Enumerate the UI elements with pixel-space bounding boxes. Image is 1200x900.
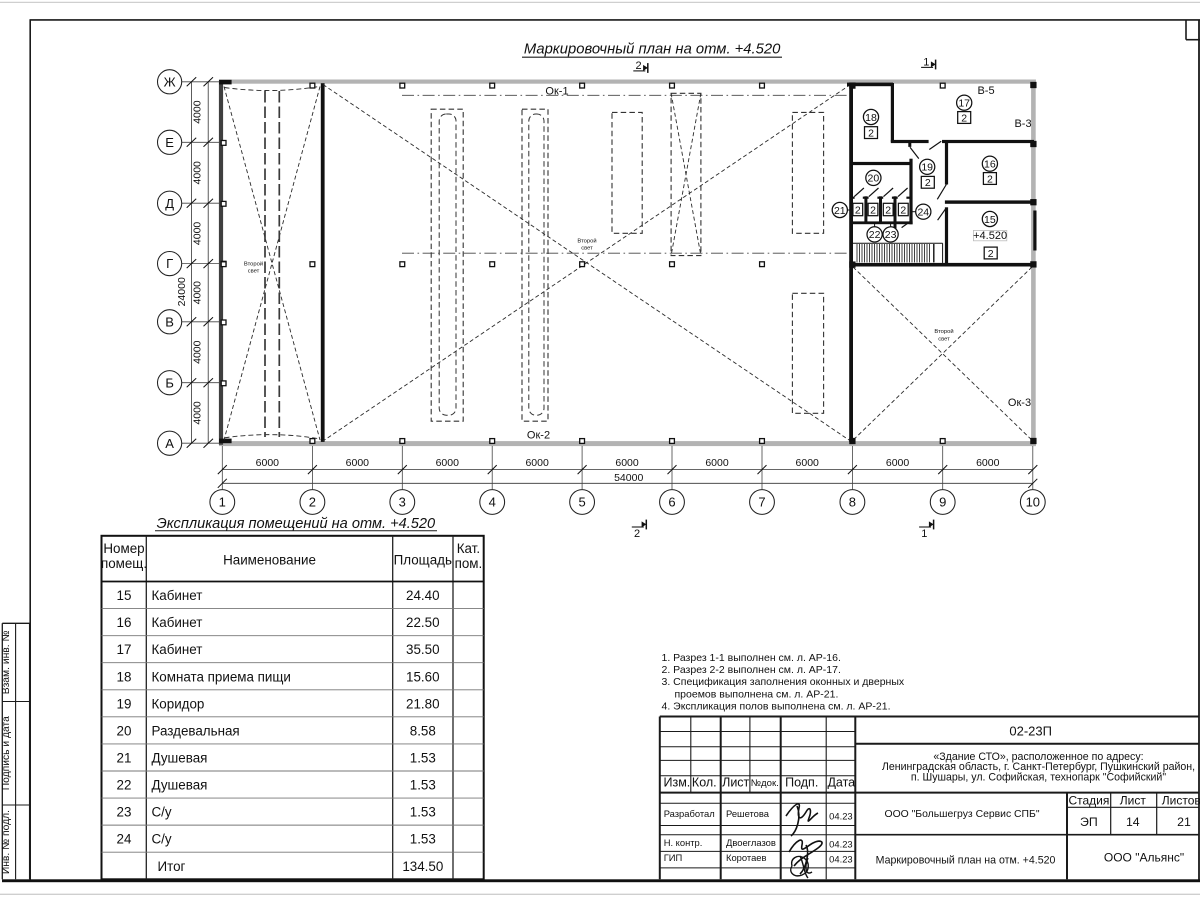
svg-text:Е: Е xyxy=(165,135,174,150)
svg-text:7: 7 xyxy=(758,495,765,510)
svg-text:134.50: 134.50 xyxy=(402,859,443,874)
svg-text:Душевая: Душевая xyxy=(152,778,208,793)
svg-text:24: 24 xyxy=(917,207,929,219)
svg-text:С/у: С/у xyxy=(152,805,172,820)
svg-text:04.23: 04.23 xyxy=(829,853,852,864)
svg-text:54000: 54000 xyxy=(614,472,643,484)
svg-text:1.53: 1.53 xyxy=(410,805,436,820)
svg-text:п. Шушары, ул. Софийская, техн: п. Шушары, ул. Софийская, технопарк "Соф… xyxy=(911,771,1166,783)
svg-text:Раздевальная: Раздевальная xyxy=(152,723,240,738)
svg-text:Разработал: Разработал xyxy=(664,808,715,819)
svg-text:Кабинет: Кабинет xyxy=(152,588,203,603)
svg-text:2: 2 xyxy=(885,204,891,216)
svg-text:9: 9 xyxy=(939,495,946,510)
svg-text:6000: 6000 xyxy=(886,457,910,469)
svg-text:+4.520: +4.520 xyxy=(973,230,1007,242)
svg-text:5: 5 xyxy=(578,495,585,510)
svg-text:Ок-2: Ок-2 xyxy=(527,430,550,442)
svg-text:04.23: 04.23 xyxy=(829,839,852,850)
svg-text:1.53: 1.53 xyxy=(410,778,436,793)
svg-text:2: 2 xyxy=(855,204,861,216)
svg-text:свет: свет xyxy=(938,336,950,342)
svg-text:Душевая: Душевая xyxy=(152,751,208,766)
svg-text:пом.: пом. xyxy=(455,556,483,571)
svg-text:1.53: 1.53 xyxy=(410,751,436,766)
svg-text:Наименование: Наименование xyxy=(223,553,316,568)
svg-text:4000: 4000 xyxy=(192,281,204,305)
svg-text:24000: 24000 xyxy=(176,277,188,306)
svg-text:19: 19 xyxy=(117,696,132,711)
svg-text:Ок-1: Ок-1 xyxy=(545,85,568,97)
svg-text:№док.: №док. xyxy=(751,778,779,789)
svg-text:4000: 4000 xyxy=(192,340,204,364)
svg-text:Дата: Дата xyxy=(827,776,855,790)
svg-text:1.53: 1.53 xyxy=(410,832,436,847)
svg-text:Кол.: Кол. xyxy=(692,776,717,790)
svg-text:6000: 6000 xyxy=(976,457,1000,469)
svg-text:4: 4 xyxy=(489,495,496,510)
svg-text:6000: 6000 xyxy=(436,457,460,469)
svg-text:18: 18 xyxy=(117,669,132,684)
svg-text:Второй: Второй xyxy=(244,261,263,268)
svg-text:21: 21 xyxy=(834,205,846,217)
svg-text:Маркировочный план на отм. +4.: Маркировочный план на отм. +4.520 xyxy=(876,854,1056,866)
svg-text:2: 2 xyxy=(900,204,906,216)
svg-text:помещ.: помещ. xyxy=(101,556,147,571)
svg-text:4000: 4000 xyxy=(192,222,204,246)
svg-text:Г: Г xyxy=(166,256,173,271)
svg-text:1: 1 xyxy=(921,528,927,540)
svg-text:В-5: В-5 xyxy=(977,85,994,97)
svg-text:15: 15 xyxy=(984,214,996,226)
svg-text:23: 23 xyxy=(885,229,897,241)
svg-text:Площадь: Площадь xyxy=(394,553,452,568)
svg-text:В: В xyxy=(165,314,174,329)
svg-text:проемов выполнена см. л. АР-21: проемов выполнена см. л. АР-21. xyxy=(675,688,839,700)
svg-text:18: 18 xyxy=(865,112,877,124)
svg-text:2: 2 xyxy=(988,248,994,260)
svg-text:4000: 4000 xyxy=(192,161,204,185)
svg-text:17: 17 xyxy=(117,642,132,657)
svg-text:21: 21 xyxy=(117,751,132,766)
svg-text:Подпись и дата: Подпись и дата xyxy=(1,716,12,790)
svg-text:В-3: В-3 xyxy=(1014,118,1031,130)
svg-text:23: 23 xyxy=(117,805,132,820)
svg-text:Инв. № подл.: Инв. № подл. xyxy=(1,810,12,874)
svg-text:1: 1 xyxy=(219,495,226,510)
svg-text:Итог: Итог xyxy=(158,859,186,874)
svg-text:Коротаев: Коротаев xyxy=(726,852,767,863)
svg-text:35.50: 35.50 xyxy=(406,642,440,657)
svg-text:2: 2 xyxy=(870,204,876,216)
svg-text:22: 22 xyxy=(117,778,132,793)
svg-text:Второй: Второй xyxy=(934,328,953,335)
svg-text:2: 2 xyxy=(925,177,931,189)
svg-text:19: 19 xyxy=(921,162,933,174)
svg-text:17: 17 xyxy=(958,98,970,110)
svg-text:21.80: 21.80 xyxy=(406,696,440,711)
svg-text:2: 2 xyxy=(635,60,641,72)
svg-text:свет: свет xyxy=(581,245,593,251)
svg-text:Ж: Ж xyxy=(164,74,176,89)
svg-text:22.50: 22.50 xyxy=(406,615,440,630)
svg-text:2: 2 xyxy=(309,495,316,510)
svg-text:3. Спецификация заполнения око: 3. Спецификация заполнения оконных и две… xyxy=(662,676,905,688)
svg-text:2. Разрез 2-2 выполнен см. л.: 2. Разрез 2-2 выполнен см. л. АР-17. xyxy=(662,664,841,676)
svg-text:24: 24 xyxy=(117,832,132,847)
svg-text:Кабинет: Кабинет xyxy=(152,615,203,630)
svg-text:Лист: Лист xyxy=(1120,793,1147,807)
svg-text:Решетова: Решетова xyxy=(726,808,770,819)
svg-text:16: 16 xyxy=(984,159,996,171)
svg-text:04.23: 04.23 xyxy=(829,810,852,821)
svg-text:21: 21 xyxy=(1177,815,1191,829)
svg-text:6000: 6000 xyxy=(525,457,549,469)
svg-text:Подп.: Подп. xyxy=(785,776,818,790)
svg-text:Номер: Номер xyxy=(103,541,144,556)
svg-text:22: 22 xyxy=(869,229,881,241)
svg-text:Комната приема пищи: Комната приема пищи xyxy=(152,669,291,684)
svg-text:8: 8 xyxy=(849,495,856,510)
svg-text:2: 2 xyxy=(634,528,640,540)
svg-text:Маркировочный план на отм. +4.: Маркировочный план на отм. +4.520 xyxy=(524,42,781,58)
svg-text:ЭП: ЭП xyxy=(1080,815,1098,829)
svg-text:24.40: 24.40 xyxy=(406,588,440,603)
svg-text:16: 16 xyxy=(117,615,132,630)
svg-text:1. Разрез 1-1 выполнен см. л.: 1. Разрез 1-1 выполнен см. л. АР-16. xyxy=(662,652,841,664)
svg-text:2: 2 xyxy=(987,173,993,185)
svg-text:Экспликация помещений на отм.: Экспликация помещений на отм. +4.520 xyxy=(157,516,435,532)
svg-text:2: 2 xyxy=(961,112,967,124)
svg-text:Кабинет: Кабинет xyxy=(152,642,203,657)
svg-text:Двоеглазов: Двоеглазов xyxy=(726,837,776,848)
svg-text:ГИП: ГИП xyxy=(664,852,683,863)
svg-text:А: А xyxy=(165,436,174,451)
svg-text:6000: 6000 xyxy=(346,457,370,469)
svg-text:4000: 4000 xyxy=(192,401,204,425)
svg-text:Коридор: Коридор xyxy=(152,696,205,711)
svg-text:8.58: 8.58 xyxy=(410,723,436,738)
svg-text:02-23П: 02-23П xyxy=(1009,724,1052,739)
svg-text:10: 10 xyxy=(1026,495,1040,510)
svg-text:Второй: Второй xyxy=(577,237,596,244)
svg-text:20: 20 xyxy=(868,173,880,185)
svg-text:15: 15 xyxy=(117,588,132,603)
svg-text:ООО "Альянс": ООО "Альянс" xyxy=(1104,851,1184,865)
svg-text:Н. контр.: Н. контр. xyxy=(664,837,703,848)
svg-text:4. Экспликация полов выполнена: 4. Экспликация полов выполнена см. л. АР… xyxy=(662,700,891,712)
svg-text:6: 6 xyxy=(668,495,675,510)
svg-text:Изм.: Изм. xyxy=(664,776,691,790)
svg-text:Лист: Лист xyxy=(722,776,749,790)
svg-text:Листов: Листов xyxy=(1162,793,1200,807)
svg-text:Б: Б xyxy=(165,375,174,390)
svg-text:6000: 6000 xyxy=(796,457,820,469)
svg-text:6000: 6000 xyxy=(256,457,280,469)
svg-text:свет: свет xyxy=(248,269,260,275)
svg-text:20: 20 xyxy=(117,723,132,738)
svg-text:ООО "Большегруз Сервис СПБ": ООО "Большегруз Сервис СПБ" xyxy=(884,809,1039,820)
svg-text:Д: Д xyxy=(165,196,174,211)
svg-text:6000: 6000 xyxy=(615,457,639,469)
svg-text:С/у: С/у xyxy=(152,832,172,847)
svg-text:15.60: 15.60 xyxy=(406,669,440,684)
svg-text:1: 1 xyxy=(923,57,929,69)
svg-text:14: 14 xyxy=(1126,815,1140,829)
svg-text:Взам. инв. №: Взам. инв. № xyxy=(1,631,12,695)
svg-text:3: 3 xyxy=(399,495,406,510)
svg-text:Стадия: Стадия xyxy=(1068,793,1109,807)
svg-text:Ок-3: Ок-3 xyxy=(1008,397,1031,409)
svg-text:2: 2 xyxy=(868,128,874,140)
svg-text:Кат.: Кат. xyxy=(457,541,480,556)
svg-text:6000: 6000 xyxy=(705,457,729,469)
svg-text:4000: 4000 xyxy=(192,100,204,124)
